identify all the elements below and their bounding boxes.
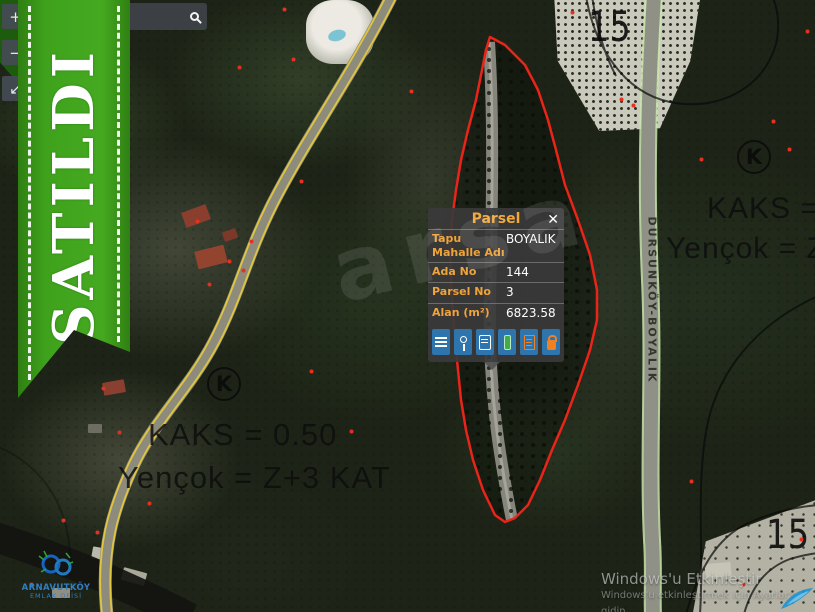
k-symbol-left: K xyxy=(207,367,241,401)
table-row: Ada No 144 xyxy=(428,263,564,284)
search-input[interactable] xyxy=(140,10,190,24)
map-viewport[interactable]: K K KAKS = 0.50 Yençok = Z+3 KAT KAKS = … xyxy=(0,0,815,612)
row-value: 3 xyxy=(506,285,560,301)
row-value: 144 xyxy=(506,265,560,281)
road-name-label: DURSUNKÖY-BOYALIK xyxy=(646,217,659,384)
lock-icon[interactable] xyxy=(542,329,560,355)
table-row: Tapu Mahalle Adı BOYALIK xyxy=(428,230,564,263)
parcel-number-bottom-right: 15 xyxy=(766,512,809,558)
row-label: Ada No xyxy=(432,265,506,281)
table-row: Alan (m²) 6823.58 xyxy=(428,304,564,324)
realtor-logo-icon xyxy=(35,548,77,580)
list-icon[interactable] xyxy=(432,329,450,355)
popup-pointer xyxy=(484,362,500,378)
parcel-number-top: 15 xyxy=(588,2,631,51)
popup-title-text: Parsel xyxy=(472,211,521,227)
report-icon[interactable] xyxy=(520,329,538,355)
row-value: 6823.58 xyxy=(506,306,560,322)
k-symbol-label: K xyxy=(216,372,232,396)
ribbon-dashed-border xyxy=(117,6,120,342)
zoning-yencok-right: Yençok = Z+3 xyxy=(666,232,815,266)
pin-icon[interactable] xyxy=(454,329,472,355)
table-row: Parsel No 3 xyxy=(428,283,564,304)
zoning-kaks-left: KAKS = 0.50 xyxy=(148,417,337,453)
row-label: Tapu Mahalle Adı xyxy=(432,232,506,260)
swoosh-logo-icon xyxy=(779,585,815,611)
sold-label: SATILDI xyxy=(41,47,107,345)
ribbon-dashed-border xyxy=(28,6,31,380)
zoning-yencok-left: Yençok = Z+3 KAT xyxy=(118,460,391,496)
realtor-logo: ARNAVUTKÖY EMLAK OFİSİ xyxy=(10,548,102,601)
measure-icon[interactable] xyxy=(498,329,516,355)
parcel-info-popup: Parsel ✕ Tapu Mahalle Adı BOYALIK Ada No… xyxy=(428,208,564,362)
popup-toolbar xyxy=(428,323,564,362)
realtor-logo-subtitle: EMLAK OFİSİ xyxy=(10,593,102,601)
k-symbol-right: K xyxy=(737,140,771,174)
popup-title: Parsel ✕ xyxy=(428,208,564,230)
seal-icon[interactable] xyxy=(476,329,494,355)
k-symbol-label: K xyxy=(746,145,762,169)
search-icon[interactable] xyxy=(190,12,199,21)
row-label: Parsel No xyxy=(432,285,506,301)
zoning-kaks-right: KAKS = 0. xyxy=(707,192,815,226)
row-label: Alan (m²) xyxy=(432,306,506,322)
row-value: BOYALIK xyxy=(506,232,560,260)
search-bar[interactable] xyxy=(126,3,207,30)
close-icon[interactable]: ✕ xyxy=(547,209,559,231)
